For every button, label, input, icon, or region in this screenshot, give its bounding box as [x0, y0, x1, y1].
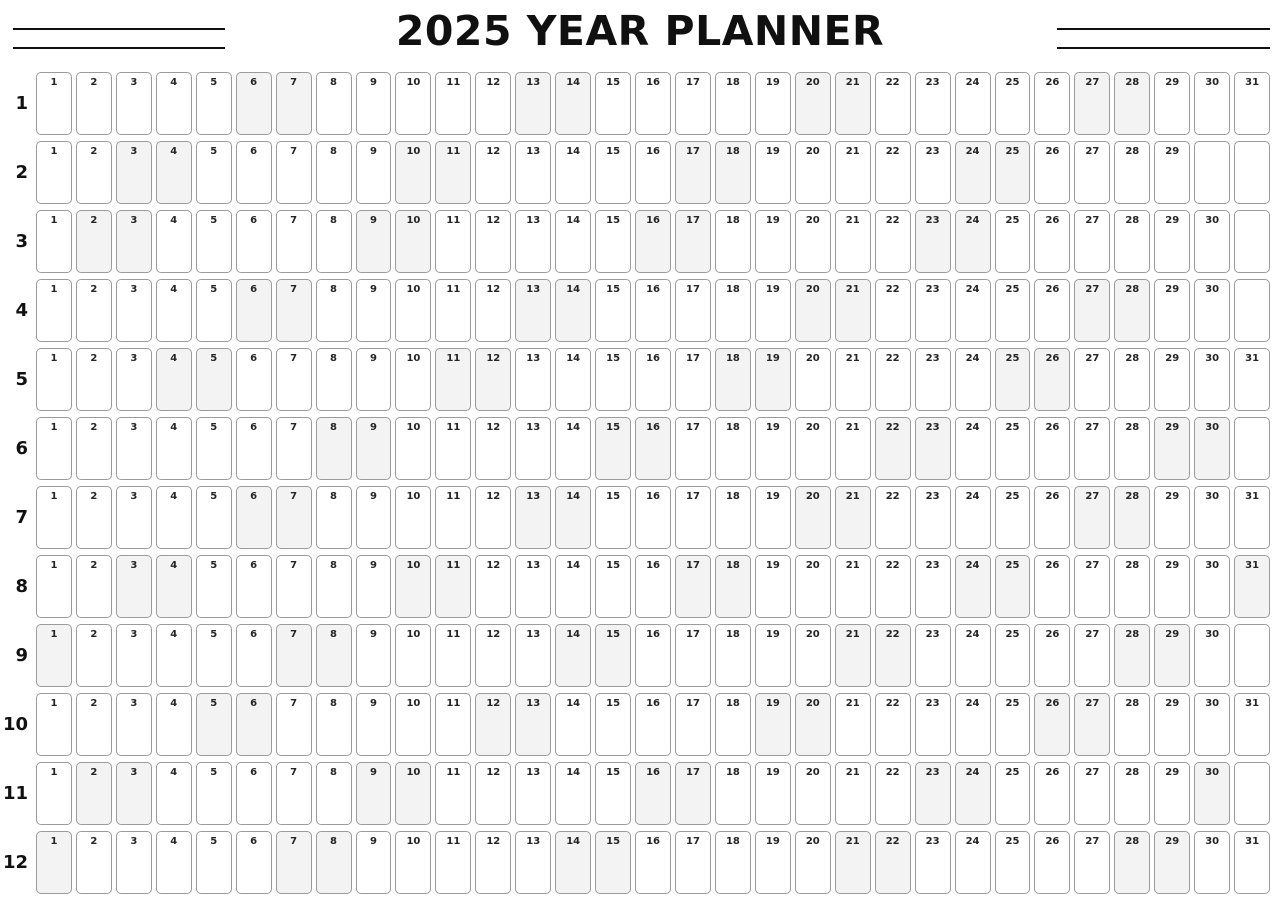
day-cell: 15 — [595, 762, 631, 825]
day-cell: 9 — [356, 486, 392, 549]
day-cell: 3 — [116, 831, 152, 894]
day-cell: 6 — [236, 279, 272, 342]
day-cell: 23 — [915, 141, 951, 204]
day-cell: 23 — [915, 72, 951, 135]
day-cell: 3 — [116, 72, 152, 135]
day-cell: 27 — [1074, 210, 1110, 273]
day-number: 30 — [1205, 629, 1219, 640]
day-number: 18 — [726, 767, 740, 778]
day-number: 6 — [250, 146, 257, 157]
day-cell: 20 — [795, 693, 831, 756]
day-number: 13 — [526, 353, 540, 364]
day-cell: 20 — [795, 624, 831, 687]
day-cell: 10 — [395, 555, 431, 618]
day-cell: 21 — [835, 486, 871, 549]
day-number: 19 — [766, 836, 780, 847]
day-number: 22 — [886, 767, 900, 778]
day-number: 5 — [210, 284, 217, 295]
day-number: 10 — [406, 215, 420, 226]
day-cell: 11 — [435, 279, 471, 342]
day-cell: 31 — [1234, 693, 1270, 756]
day-cell: 29 — [1154, 141, 1190, 204]
day-cell: 3 — [116, 555, 152, 618]
month-row: 3123456789101112131415161718192021222324… — [0, 210, 1280, 273]
day-cell: 23 — [915, 417, 951, 480]
month-row: 5123456789101112131415161718192021222324… — [0, 348, 1280, 411]
day-number: 3 — [130, 146, 137, 157]
day-number: 10 — [406, 353, 420, 364]
day-number: 1 — [50, 698, 57, 709]
day-cell: 11 — [435, 693, 471, 756]
day-cell: 4 — [156, 555, 192, 618]
day-cells: 1234567891011121314151617181920212223242… — [36, 210, 1270, 273]
day-cell: 2 — [76, 555, 112, 618]
day-cell: 2 — [76, 624, 112, 687]
day-number: 10 — [406, 629, 420, 640]
day-number: 20 — [806, 146, 820, 157]
day-number: 16 — [646, 629, 660, 640]
day-number: 1 — [50, 422, 57, 433]
day-number: 30 — [1205, 77, 1219, 88]
day-number: 24 — [966, 560, 980, 571]
day-number: 12 — [486, 146, 500, 157]
day-cell-empty — [1234, 141, 1270, 204]
day-number: 31 — [1245, 836, 1259, 847]
day-cell: 3 — [116, 210, 152, 273]
day-cell: 12 — [475, 624, 511, 687]
day-number: 7 — [290, 353, 297, 364]
day-number: 8 — [330, 422, 337, 433]
day-cell: 11 — [435, 417, 471, 480]
day-number: 7 — [290, 146, 297, 157]
day-number: 13 — [526, 629, 540, 640]
day-number: 24 — [966, 146, 980, 157]
day-number: 27 — [1085, 284, 1099, 295]
day-number: 25 — [1006, 215, 1020, 226]
day-number: 26 — [1045, 491, 1059, 502]
day-number: 30 — [1205, 767, 1219, 778]
day-cell: 16 — [635, 831, 671, 894]
day-number: 3 — [130, 284, 137, 295]
day-number: 6 — [250, 836, 257, 847]
day-number: 12 — [486, 353, 500, 364]
day-cell: 7 — [276, 279, 312, 342]
day-number: 12 — [486, 560, 500, 571]
day-cell: 26 — [1034, 486, 1070, 549]
day-cell: 8 — [316, 555, 352, 618]
day-number: 11 — [446, 629, 460, 640]
day-cell: 3 — [116, 624, 152, 687]
day-cell: 19 — [755, 417, 791, 480]
day-cell: 21 — [835, 141, 871, 204]
day-cell: 12 — [475, 693, 511, 756]
day-cell: 11 — [435, 72, 471, 135]
day-number: 2 — [90, 767, 97, 778]
day-cell: 25 — [995, 210, 1031, 273]
day-number: 12 — [486, 767, 500, 778]
day-cell: 16 — [635, 72, 671, 135]
day-cell: 16 — [635, 624, 671, 687]
day-cell: 5 — [196, 417, 232, 480]
day-number: 12 — [486, 629, 500, 640]
day-number: 4 — [170, 284, 177, 295]
day-cell: 18 — [715, 624, 751, 687]
day-cell: 28 — [1114, 762, 1150, 825]
day-cell: 17 — [675, 624, 711, 687]
day-number: 5 — [210, 422, 217, 433]
day-number: 10 — [406, 77, 420, 88]
day-cell: 29 — [1154, 72, 1190, 135]
day-cell-empty — [1234, 624, 1270, 687]
day-cell: 16 — [635, 279, 671, 342]
day-cell: 4 — [156, 348, 192, 411]
day-cell: 28 — [1114, 486, 1150, 549]
day-cell: 25 — [995, 624, 1031, 687]
month-row: 1123456789101112131415161718192021222324… — [0, 72, 1280, 135]
day-number: 29 — [1165, 491, 1179, 502]
day-number: 2 — [90, 422, 97, 433]
day-cell: 7 — [276, 348, 312, 411]
day-cell: 12 — [475, 417, 511, 480]
day-number: 9 — [370, 215, 377, 226]
day-cells: 1234567891011121314151617181920212223242… — [36, 348, 1270, 411]
day-number: 7 — [290, 767, 297, 778]
day-number: 27 — [1085, 422, 1099, 433]
day-cell: 22 — [875, 210, 911, 273]
day-cell: 27 — [1074, 555, 1110, 618]
day-cell: 7 — [276, 486, 312, 549]
day-cell: 10 — [395, 624, 431, 687]
day-number: 7 — [290, 77, 297, 88]
day-cell: 20 — [795, 210, 831, 273]
day-cell: 21 — [835, 831, 871, 894]
day-number: 30 — [1205, 560, 1219, 571]
day-cells: 1234567891011121314151617181920212223242… — [36, 72, 1270, 135]
day-cell: 6 — [236, 348, 272, 411]
day-number: 19 — [766, 422, 780, 433]
day-number: 13 — [526, 146, 540, 157]
day-number: 1 — [50, 560, 57, 571]
day-number: 10 — [406, 767, 420, 778]
day-cell: 12 — [475, 762, 511, 825]
day-cell: 18 — [715, 831, 751, 894]
day-cell: 30 — [1194, 624, 1230, 687]
day-number: 28 — [1125, 146, 1139, 157]
rule-line — [1057, 47, 1270, 49]
day-cell: 13 — [515, 831, 551, 894]
day-number: 23 — [926, 629, 940, 640]
day-number: 23 — [926, 146, 940, 157]
day-cell: 30 — [1194, 762, 1230, 825]
day-cell: 21 — [835, 555, 871, 618]
day-cell: 16 — [635, 486, 671, 549]
day-number: 16 — [646, 215, 660, 226]
day-number: 21 — [846, 629, 860, 640]
day-cell: 2 — [76, 279, 112, 342]
day-number: 2 — [90, 146, 97, 157]
day-cell: 6 — [236, 486, 272, 549]
day-number: 21 — [846, 353, 860, 364]
day-cell: 17 — [675, 693, 711, 756]
day-number: 8 — [330, 491, 337, 502]
day-cell: 18 — [715, 348, 751, 411]
day-cell: 24 — [955, 831, 991, 894]
day-number: 13 — [526, 284, 540, 295]
day-cells: 1234567891011121314151617181920212223242… — [36, 624, 1270, 687]
day-cells: 1234567891011121314151617181920212223242… — [36, 141, 1270, 204]
day-number: 20 — [806, 836, 820, 847]
day-cell: 15 — [595, 693, 631, 756]
day-cell: 18 — [715, 417, 751, 480]
day-cell: 10 — [395, 417, 431, 480]
day-cell: 14 — [555, 693, 591, 756]
day-number: 8 — [330, 77, 337, 88]
day-number: 17 — [686, 767, 700, 778]
day-cell: 11 — [435, 486, 471, 549]
day-number: 29 — [1165, 629, 1179, 640]
day-cell: 11 — [435, 210, 471, 273]
day-number: 19 — [766, 491, 780, 502]
day-cell: 13 — [515, 72, 551, 135]
day-number: 14 — [566, 698, 580, 709]
day-cell: 26 — [1034, 624, 1070, 687]
day-number: 27 — [1085, 77, 1099, 88]
day-number: 28 — [1125, 629, 1139, 640]
day-cell: 3 — [116, 141, 152, 204]
day-cell: 13 — [515, 486, 551, 549]
rule-line — [13, 28, 225, 30]
day-number: 15 — [606, 353, 620, 364]
day-cells: 1234567891011121314151617181920212223242… — [36, 555, 1270, 618]
day-number: 30 — [1205, 284, 1219, 295]
day-number: 16 — [646, 491, 660, 502]
day-number: 7 — [290, 215, 297, 226]
day-cell: 29 — [1154, 486, 1190, 549]
day-number: 4 — [170, 560, 177, 571]
day-number: 3 — [130, 698, 137, 709]
rule-line — [1057, 28, 1270, 30]
day-number: 15 — [606, 560, 620, 571]
day-cell: 3 — [116, 486, 152, 549]
day-number: 25 — [1006, 560, 1020, 571]
day-cell: 28 — [1114, 555, 1150, 618]
month-label: 4 — [0, 279, 36, 342]
day-cell: 24 — [955, 279, 991, 342]
day-number: 4 — [170, 629, 177, 640]
month-label: 11 — [0, 762, 36, 825]
day-cell: 13 — [515, 279, 551, 342]
day-cell: 1 — [36, 210, 72, 273]
day-cell: 30 — [1194, 72, 1230, 135]
day-number: 29 — [1165, 353, 1179, 364]
day-cell: 7 — [276, 555, 312, 618]
day-number: 17 — [686, 422, 700, 433]
day-cell: 14 — [555, 417, 591, 480]
day-cell: 18 — [715, 555, 751, 618]
day-cell: 2 — [76, 417, 112, 480]
day-cell: 30 — [1194, 279, 1230, 342]
day-cell: 13 — [515, 762, 551, 825]
day-number: 20 — [806, 284, 820, 295]
day-number: 14 — [566, 77, 580, 88]
day-number: 8 — [330, 836, 337, 847]
day-number: 24 — [966, 629, 980, 640]
day-number: 30 — [1205, 215, 1219, 226]
day-cell: 1 — [36, 279, 72, 342]
day-cell: 13 — [515, 348, 551, 411]
day-cell: 7 — [276, 693, 312, 756]
day-cell: 17 — [675, 417, 711, 480]
day-cell: 25 — [995, 486, 1031, 549]
day-cell: 30 — [1194, 486, 1230, 549]
month-row: 8123456789101112131415161718192021222324… — [0, 555, 1280, 618]
day-cell: 31 — [1234, 348, 1270, 411]
day-number: 7 — [290, 491, 297, 502]
day-number: 3 — [130, 629, 137, 640]
day-number: 8 — [330, 560, 337, 571]
day-cell: 27 — [1074, 624, 1110, 687]
day-number: 24 — [966, 353, 980, 364]
day-number: 12 — [486, 215, 500, 226]
day-number: 4 — [170, 767, 177, 778]
day-number: 24 — [966, 77, 980, 88]
day-cell: 9 — [356, 555, 392, 618]
day-cell: 25 — [995, 72, 1031, 135]
day-number: 5 — [210, 560, 217, 571]
day-number: 21 — [846, 767, 860, 778]
day-number: 27 — [1085, 215, 1099, 226]
day-cell: 3 — [116, 279, 152, 342]
day-number: 18 — [726, 215, 740, 226]
day-number: 4 — [170, 491, 177, 502]
day-cell: 4 — [156, 210, 192, 273]
day-number: 13 — [526, 698, 540, 709]
day-cell: 4 — [156, 141, 192, 204]
day-cell: 29 — [1154, 417, 1190, 480]
day-number: 21 — [846, 146, 860, 157]
day-cell: 28 — [1114, 72, 1150, 135]
day-cell: 6 — [236, 417, 272, 480]
day-number: 5 — [210, 77, 217, 88]
day-number: 4 — [170, 698, 177, 709]
day-number: 19 — [766, 767, 780, 778]
day-number: 8 — [330, 353, 337, 364]
day-cell: 7 — [276, 141, 312, 204]
day-number: 9 — [370, 491, 377, 502]
day-cell: 19 — [755, 831, 791, 894]
day-number: 9 — [370, 560, 377, 571]
day-cell: 15 — [595, 72, 631, 135]
day-cell: 23 — [915, 693, 951, 756]
day-cell: 12 — [475, 831, 511, 894]
day-cell: 30 — [1194, 555, 1230, 618]
day-cell: 18 — [715, 762, 751, 825]
day-cell: 9 — [356, 762, 392, 825]
day-number: 12 — [486, 422, 500, 433]
day-number: 20 — [806, 560, 820, 571]
day-cell: 18 — [715, 141, 751, 204]
day-number: 3 — [130, 215, 137, 226]
day-number: 12 — [486, 491, 500, 502]
day-cell: 25 — [995, 141, 1031, 204]
day-number: 19 — [766, 284, 780, 295]
day-cell: 12 — [475, 348, 511, 411]
day-cell: 11 — [435, 624, 471, 687]
day-number: 5 — [210, 767, 217, 778]
day-cells: 1234567891011121314151617181920212223242… — [36, 486, 1270, 549]
day-number: 31 — [1245, 77, 1259, 88]
day-number: 25 — [1006, 836, 1020, 847]
day-number: 12 — [486, 836, 500, 847]
day-number: 24 — [966, 491, 980, 502]
day-number: 29 — [1165, 422, 1179, 433]
day-cell: 24 — [955, 762, 991, 825]
day-cell: 10 — [395, 210, 431, 273]
day-number: 17 — [686, 146, 700, 157]
day-cell: 2 — [76, 486, 112, 549]
day-cell: 2 — [76, 141, 112, 204]
day-number: 6 — [250, 422, 257, 433]
day-number: 9 — [370, 422, 377, 433]
day-number: 27 — [1085, 353, 1099, 364]
day-cell: 11 — [435, 348, 471, 411]
day-number: 29 — [1165, 698, 1179, 709]
day-number: 16 — [646, 698, 660, 709]
day-cell: 5 — [196, 693, 232, 756]
day-number: 29 — [1165, 215, 1179, 226]
day-cell: 21 — [835, 210, 871, 273]
day-cell: 23 — [915, 486, 951, 549]
month-row: 9123456789101112131415161718192021222324… — [0, 624, 1280, 687]
day-cell: 24 — [955, 210, 991, 273]
day-cell: 9 — [356, 72, 392, 135]
day-number: 25 — [1006, 491, 1020, 502]
month-row: 6123456789101112131415161718192021222324… — [0, 417, 1280, 480]
day-number: 13 — [526, 422, 540, 433]
day-cell: 9 — [356, 210, 392, 273]
day-number: 17 — [686, 836, 700, 847]
day-number: 15 — [606, 629, 620, 640]
day-cell: 27 — [1074, 831, 1110, 894]
day-cell: 31 — [1234, 72, 1270, 135]
day-cell: 11 — [435, 141, 471, 204]
month-row: 1212345678910111213141516171819202122232… — [0, 831, 1280, 894]
day-cell-empty — [1194, 141, 1230, 204]
day-cells: 1234567891011121314151617181920212223242… — [36, 693, 1270, 756]
day-number: 15 — [606, 77, 620, 88]
day-cell: 20 — [795, 762, 831, 825]
day-number: 15 — [606, 767, 620, 778]
day-cell: 22 — [875, 831, 911, 894]
day-cell: 13 — [515, 417, 551, 480]
day-cell: 21 — [835, 72, 871, 135]
day-number: 17 — [686, 77, 700, 88]
day-cell: 8 — [316, 210, 352, 273]
day-cell: 13 — [515, 210, 551, 273]
day-number: 20 — [806, 215, 820, 226]
day-number: 15 — [606, 491, 620, 502]
day-cell: 23 — [915, 210, 951, 273]
day-cell: 29 — [1154, 348, 1190, 411]
day-cell: 24 — [955, 141, 991, 204]
day-number: 22 — [886, 560, 900, 571]
day-cell: 16 — [635, 141, 671, 204]
day-number: 4 — [170, 353, 177, 364]
day-cell: 28 — [1114, 210, 1150, 273]
day-cell: 8 — [316, 762, 352, 825]
day-cell: 4 — [156, 417, 192, 480]
day-cell: 17 — [675, 72, 711, 135]
